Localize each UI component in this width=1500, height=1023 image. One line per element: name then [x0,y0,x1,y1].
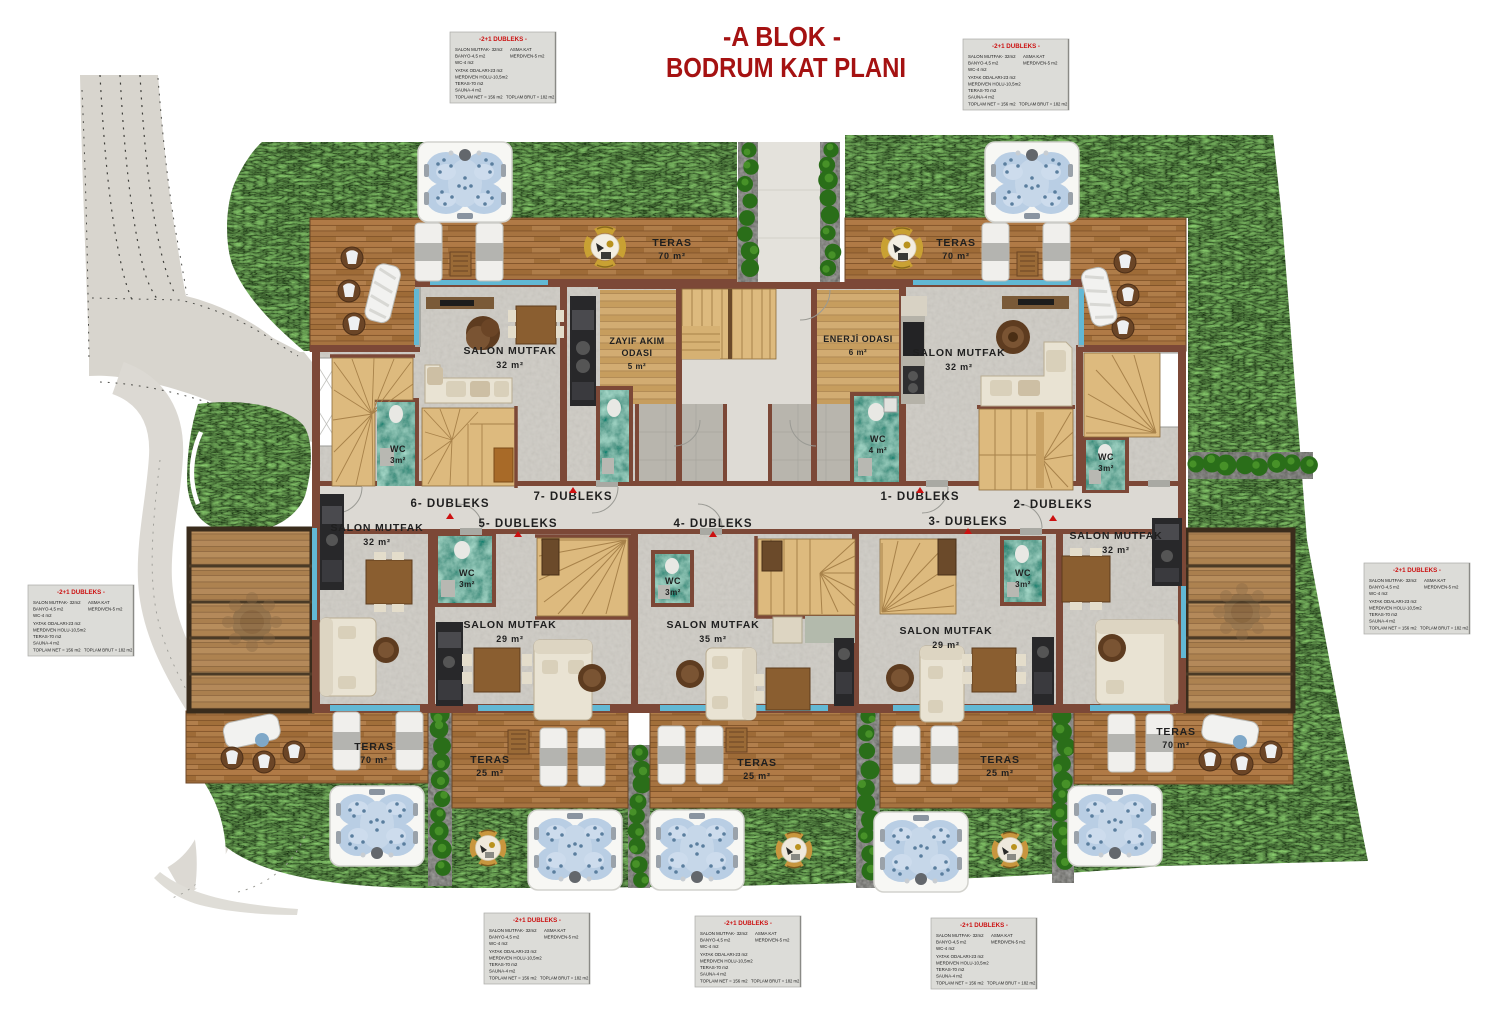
svg-text:TERAS: TERAS [936,237,976,249]
svg-text:29 m²: 29 m² [932,640,960,650]
svg-text:SALON MUTFAK: SALON MUTFAK [463,619,556,631]
svg-text:32 m²: 32 m² [363,537,391,547]
svg-text:6 m²: 6 m² [849,348,867,357]
svg-text:ZAYIF AKIM: ZAYIF AKIM [609,336,664,346]
svg-text:70 m²: 70 m² [658,251,686,261]
svg-text:5 m²: 5 m² [628,362,646,371]
svg-text:70 m²: 70 m² [942,251,970,261]
svg-text:32 m²: 32 m² [1102,545,1130,555]
svg-text:WC: WC [1098,452,1114,462]
svg-text:70 m²: 70 m² [1162,740,1190,750]
svg-text:TERAS: TERAS [737,757,777,769]
svg-text:TERAS: TERAS [354,741,394,753]
svg-text:SALON MUTFAK: SALON MUTFAK [666,619,759,631]
svg-text:SALON MUTFAK: SALON MUTFAK [899,625,992,637]
svg-text:4- DUBLEKS: 4- DUBLEKS [673,518,752,530]
svg-text:4 m²: 4 m² [869,446,887,455]
svg-text:TERAS: TERAS [1156,726,1196,738]
svg-text:-A BLOK -: -A BLOK - [723,21,841,52]
svg-text:SALON MUTFAK: SALON MUTFAK [912,347,1005,359]
svg-text:32 m²: 32 m² [945,362,973,372]
svg-text:25 m²: 25 m² [743,771,771,781]
svg-text:25 m²: 25 m² [986,768,1014,778]
svg-text:2- DUBLEKS: 2- DUBLEKS [1013,499,1092,511]
svg-text:WC: WC [390,444,406,454]
svg-text:70 m²: 70 m² [360,755,388,765]
svg-text:SALON MUTFAK: SALON MUTFAK [1069,530,1162,542]
svg-text:WC: WC [1015,568,1031,578]
svg-text:ODASI: ODASI [621,348,652,358]
svg-text:25 m²: 25 m² [476,768,504,778]
svg-text:3m²: 3m² [1098,464,1114,473]
svg-text:SALON MUTFAK: SALON MUTFAK [330,522,423,534]
svg-text:3m²: 3m² [390,456,406,465]
svg-text:3m²: 3m² [459,580,475,589]
svg-text:SALON MUTFAK: SALON MUTFAK [463,345,556,357]
svg-text:WC: WC [459,568,475,578]
svg-text:35 m²: 35 m² [699,634,727,644]
svg-text:3m²: 3m² [665,588,681,597]
svg-text:BODRUM KAT PLANI: BODRUM KAT PLANI [666,52,906,83]
svg-text:29 m²: 29 m² [496,634,524,644]
svg-text:3- DUBLEKS: 3- DUBLEKS [928,516,1007,528]
svg-text:6- DUBLEKS: 6- DUBLEKS [410,498,489,510]
svg-text:WC: WC [665,576,681,586]
svg-text:5- DUBLEKS: 5- DUBLEKS [478,518,557,530]
svg-text:TERAS: TERAS [980,754,1020,766]
svg-text:32 m²: 32 m² [496,360,524,370]
svg-text:ENERJİ ODASI: ENERJİ ODASI [823,334,893,344]
svg-text:TERAS: TERAS [470,754,510,766]
svg-text:TERAS: TERAS [652,237,692,249]
svg-text:WC: WC [870,434,886,444]
svg-text:3m²: 3m² [1015,580,1031,589]
